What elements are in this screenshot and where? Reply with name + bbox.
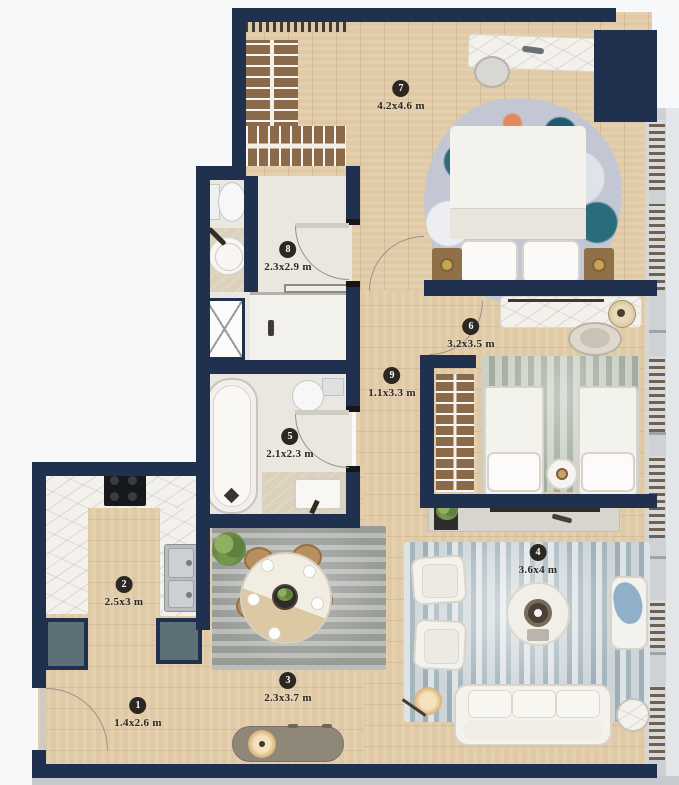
- side-table: [616, 698, 650, 732]
- desk-lamp-center: [617, 309, 625, 317]
- room-label-6: 6 3.2x3.5 m: [447, 318, 495, 350]
- balcony-railing: [648, 204, 665, 290]
- wall-bath-right: [346, 466, 360, 528]
- cooktop-burner: [110, 492, 119, 501]
- shower-towel-bar: [284, 284, 348, 293]
- walkin-wardrobe-horizontal: [246, 126, 346, 166]
- dining-plant: [212, 532, 246, 566]
- window-glass: [645, 110, 649, 280]
- pillow: [522, 240, 580, 284]
- room-number-6: 6: [463, 318, 480, 335]
- armchair-cushion: [424, 629, 459, 664]
- dining-plate: [311, 597, 324, 610]
- shower-handle: [268, 320, 274, 336]
- dining-plate: [247, 593, 260, 606]
- balcony-divider: [648, 652, 666, 655]
- dining-centerpiece-plant: [277, 588, 293, 601]
- wall-left-upper: [232, 8, 246, 170]
- wall-bath-right: [346, 281, 360, 412]
- room-dimensions-1: 1.4x2.6 m: [114, 717, 162, 729]
- wall-bath-bottom: [196, 514, 360, 528]
- wall-kitchen-top: [32, 462, 210, 476]
- kitchen-faucet: [186, 560, 192, 566]
- room-label-5: 5 2.1x2.3 m: [266, 428, 314, 460]
- wall-below-master-bed: [424, 280, 657, 296]
- dining-plate: [268, 627, 281, 640]
- vanity-stool: [474, 56, 510, 88]
- room-dimensions-9: 1.1x3.3 m: [368, 387, 416, 399]
- round-sink-basin: [215, 243, 243, 271]
- sofa-cushion: [556, 690, 600, 718]
- wall-block-topright: [594, 30, 657, 122]
- coffee-table-dot: [534, 609, 542, 617]
- room-number-8: 8: [280, 241, 297, 258]
- room-number-5: 5: [282, 428, 299, 445]
- sofa-seat: [464, 720, 602, 740]
- wall-bedroom2-left: [420, 355, 434, 508]
- bedside-tray-cup: [556, 468, 568, 480]
- pillow: [460, 240, 518, 284]
- balcony-divider: [648, 330, 666, 333]
- cooktop-burner: [110, 476, 119, 485]
- console-tv: [490, 508, 600, 512]
- balcony-railing: [648, 120, 665, 190]
- room-label-2: 2 2.5x3 m: [105, 576, 144, 608]
- wall-left-lower: [32, 462, 46, 688]
- wardrobe-bedroom-second: [436, 374, 474, 492]
- ottoman-handle: [322, 724, 332, 728]
- desk-edge: [508, 299, 604, 302]
- nightstand-lamp: [592, 258, 606, 272]
- wall-bedroom2-stub: [420, 355, 476, 368]
- room-number-3: 3: [280, 672, 297, 689]
- room-label-7: 7 4.2x4.6 m: [377, 80, 425, 112]
- floor-plan: 1 1.4x2.6 m 2 2.5x3 m 3 2.3x3.7 m 4 3.6x…: [0, 0, 679, 785]
- bed-master-fold: [450, 208, 586, 239]
- wall-bedroom2-bottom: [420, 494, 657, 508]
- room-dimensions-7: 4.2x4.6 m: [377, 100, 425, 112]
- room-label-8: 8 2.3x2.9 m: [264, 241, 312, 273]
- room-label-4: 4 3.6x4 m: [519, 544, 558, 576]
- balcony-railing: [648, 356, 665, 432]
- window-glass: [645, 296, 649, 494]
- wall-bottom: [32, 764, 657, 778]
- wall-left-mid: [196, 166, 210, 630]
- sofa-cushion: [512, 690, 556, 718]
- dining-plate: [261, 559, 274, 572]
- room-dimensions-3: 2.3x3.7 m: [264, 692, 312, 704]
- cooktop: [104, 471, 146, 506]
- room-number-9: 9: [384, 367, 401, 384]
- wall-bath-right: [346, 166, 360, 225]
- coffee-table-tray: [527, 629, 549, 641]
- kitchen-faucet: [186, 592, 192, 598]
- room-label-1: 1 1.4x2.6 m: [114, 697, 162, 729]
- pillow: [581, 452, 635, 492]
- dining-plate: [303, 565, 316, 578]
- room-label-3: 3 2.3x3.7 m: [264, 672, 312, 704]
- kitchen-cabinet-block: [44, 618, 88, 670]
- door-jamb: [346, 281, 360, 287]
- shower-floor: [250, 294, 350, 362]
- room-dimensions-2: 2.5x3 m: [105, 596, 144, 608]
- balcony-railing: [648, 600, 665, 648]
- entry-ottoman-lamp-center: [259, 741, 265, 747]
- desk-chair-seat: [580, 328, 610, 348]
- balcony-divider: [648, 432, 666, 435]
- balcony-outer-panel: [666, 108, 679, 785]
- room-number-1: 1: [130, 697, 147, 714]
- room-dimensions-5: 2.1x2.3 m: [266, 448, 314, 460]
- room-number-4: 4: [529, 544, 546, 561]
- toilet-bowl: [218, 182, 246, 222]
- cooktop-burner: [128, 476, 137, 485]
- toilet-tank: [322, 378, 344, 396]
- room-dimensions-6: 3.2x3.5 m: [447, 338, 495, 350]
- pillow: [487, 452, 541, 492]
- room-number-7: 7: [393, 80, 410, 97]
- kitchen-counter-left: [44, 470, 88, 614]
- wall-top: [232, 8, 616, 22]
- room-label-9: 9 1.1x3.3 m: [368, 367, 416, 399]
- service-shaft: [204, 298, 245, 360]
- armchair-cushion: [422, 564, 458, 598]
- balcony-divider: [648, 556, 666, 559]
- sofa-cushion: [468, 690, 512, 718]
- room-dimensions-8: 2.3x2.9 m: [264, 261, 312, 273]
- room-dimensions-4: 3.6x4 m: [519, 564, 558, 576]
- ottoman-handle: [288, 724, 298, 728]
- balcony-railing: [648, 686, 665, 760]
- wall-bath-divider: [196, 360, 360, 374]
- cooktop-burner: [128, 492, 137, 501]
- toilet-bowl: [292, 380, 324, 412]
- entry-door-panel: [40, 688, 46, 750]
- wall-bath-inner: [244, 176, 258, 292]
- nightstand-lamp: [440, 258, 454, 272]
- room-number-2: 2: [115, 576, 132, 593]
